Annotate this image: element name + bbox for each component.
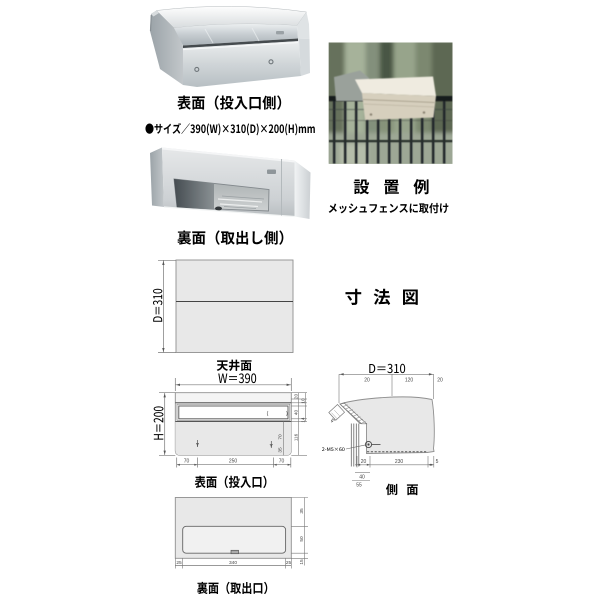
svg-text:20: 20 — [361, 459, 367, 465]
svg-text:340: 340 — [229, 560, 237, 566]
svg-text:120: 120 — [405, 378, 414, 384]
svg-text:70: 70 — [277, 434, 283, 440]
svg-text:20: 20 — [437, 378, 443, 384]
svg-text:10: 10 — [301, 398, 306, 404]
svg-text:40: 40 — [293, 410, 298, 416]
svg-text:20: 20 — [364, 378, 370, 384]
svg-text:25: 25 — [176, 560, 182, 566]
svg-text:14: 14 — [301, 417, 306, 423]
svg-text:40: 40 — [359, 474, 365, 480]
svg-text:5: 5 — [436, 459, 439, 465]
svg-text:15: 15 — [299, 559, 305, 565]
svg-text:55: 55 — [356, 482, 362, 488]
svg-text:35: 35 — [277, 447, 283, 453]
svg-text:50: 50 — [299, 536, 305, 542]
svg-text:35: 35 — [299, 508, 305, 514]
svg-text:25: 25 — [286, 560, 292, 566]
svg-text:70: 70 — [184, 459, 190, 465]
svg-text:20: 20 — [293, 394, 298, 400]
svg-text:116: 116 — [293, 433, 298, 441]
svg-text:230: 230 — [395, 459, 404, 465]
svg-text:70: 70 — [279, 459, 285, 465]
svg-text:250: 250 — [229, 459, 238, 465]
